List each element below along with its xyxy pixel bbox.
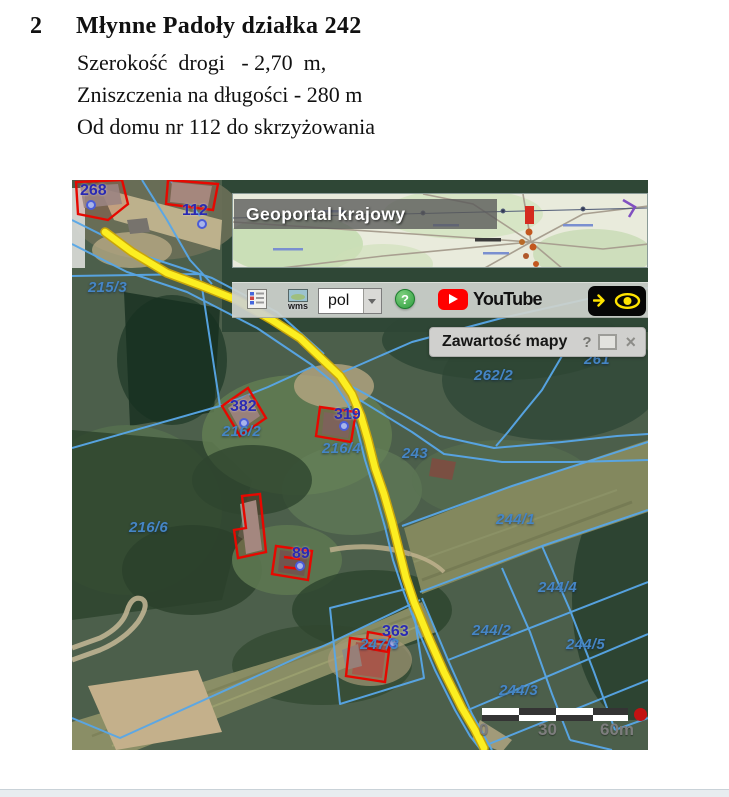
map-contents-panel[interactable]: Zawartość mapy ? × — [429, 327, 646, 357]
parcel-label-215-3: 215/3 — [88, 279, 127, 296]
parcel-label-244-5: 244/5 — [566, 636, 605, 653]
red-poi-marker — [634, 708, 647, 721]
geoportal-banner: Geoportal krajowy — [234, 199, 497, 229]
road-width-line: Szerokość drogi - 2,70 m, — [77, 50, 326, 76]
parcel-label-244-2: 244/2 — [472, 622, 511, 639]
map-toolbar: wms pol ? YouTube — [232, 282, 648, 318]
youtube-wordmark: YouTube — [473, 289, 542, 310]
map-screenshot[interactable]: 215/3 216/2 216/4 243 262/2 261 216/6 24… — [72, 180, 648, 750]
panel-maximize-button[interactable] — [598, 334, 617, 350]
wms-label: wms — [286, 301, 310, 311]
item-number: 2 — [30, 13, 42, 40]
parcel-label-216-4: 216/4 — [322, 440, 361, 457]
parcel-label-216-2: 216/2 — [222, 423, 261, 440]
parcel-label-216-6: 216/6 — [129, 519, 168, 536]
scale-tick-60m: 60m — [600, 720, 634, 740]
building-label-268: 268 — [80, 182, 107, 200]
scale-tick-0: 0 — [479, 720, 488, 740]
building-label-319: 319 — [334, 406, 361, 424]
streetview-controls[interactable] — [588, 286, 646, 316]
parcel-label-243: 243 — [402, 445, 428, 462]
panel-close-button[interactable]: × — [625, 335, 636, 349]
parcel-label-244-1: 244/1 — [496, 511, 535, 528]
panel-help-button[interactable]: ? — [582, 334, 591, 351]
damage-length-line: Zniszczenia na długości - 280 m — [77, 82, 362, 108]
wms-thumbnail — [288, 289, 308, 302]
building-label-112: 112 — [182, 202, 208, 220]
parcel-label-244-3: 244/3 — [499, 682, 538, 699]
chevron-down-icon — [363, 289, 381, 313]
document-title: Młynne Padoły działka 242 — [76, 13, 362, 40]
building-label-363: 363 — [382, 623, 409, 641]
legend-icon-art — [249, 290, 265, 306]
wms-icon[interactable]: wms — [286, 286, 310, 314]
panel-title: Zawartość mapy — [442, 333, 575, 351]
language-select[interactable]: pol — [318, 288, 382, 314]
building-label-382: 382 — [230, 398, 257, 416]
eye-icon — [614, 292, 641, 310]
youtube-play-icon — [438, 289, 468, 310]
building-label-89: 89 — [292, 545, 310, 563]
language-value: pol — [328, 292, 349, 310]
scale-bar: 0 30 60m — [482, 706, 642, 744]
parcel-label-262-2: 262/2 — [474, 367, 513, 384]
youtube-logo[interactable]: YouTube — [438, 289, 542, 310]
arrow-icon — [593, 294, 608, 307]
legend-icon[interactable] — [247, 289, 267, 309]
route-description-line: Od domu nr 112 do skrzyżowania — [77, 114, 375, 140]
parcel-label-244-4: 244/4 — [538, 579, 577, 596]
help-icon[interactable]: ? — [395, 289, 415, 309]
scale-tick-30: 30 — [538, 720, 557, 740]
